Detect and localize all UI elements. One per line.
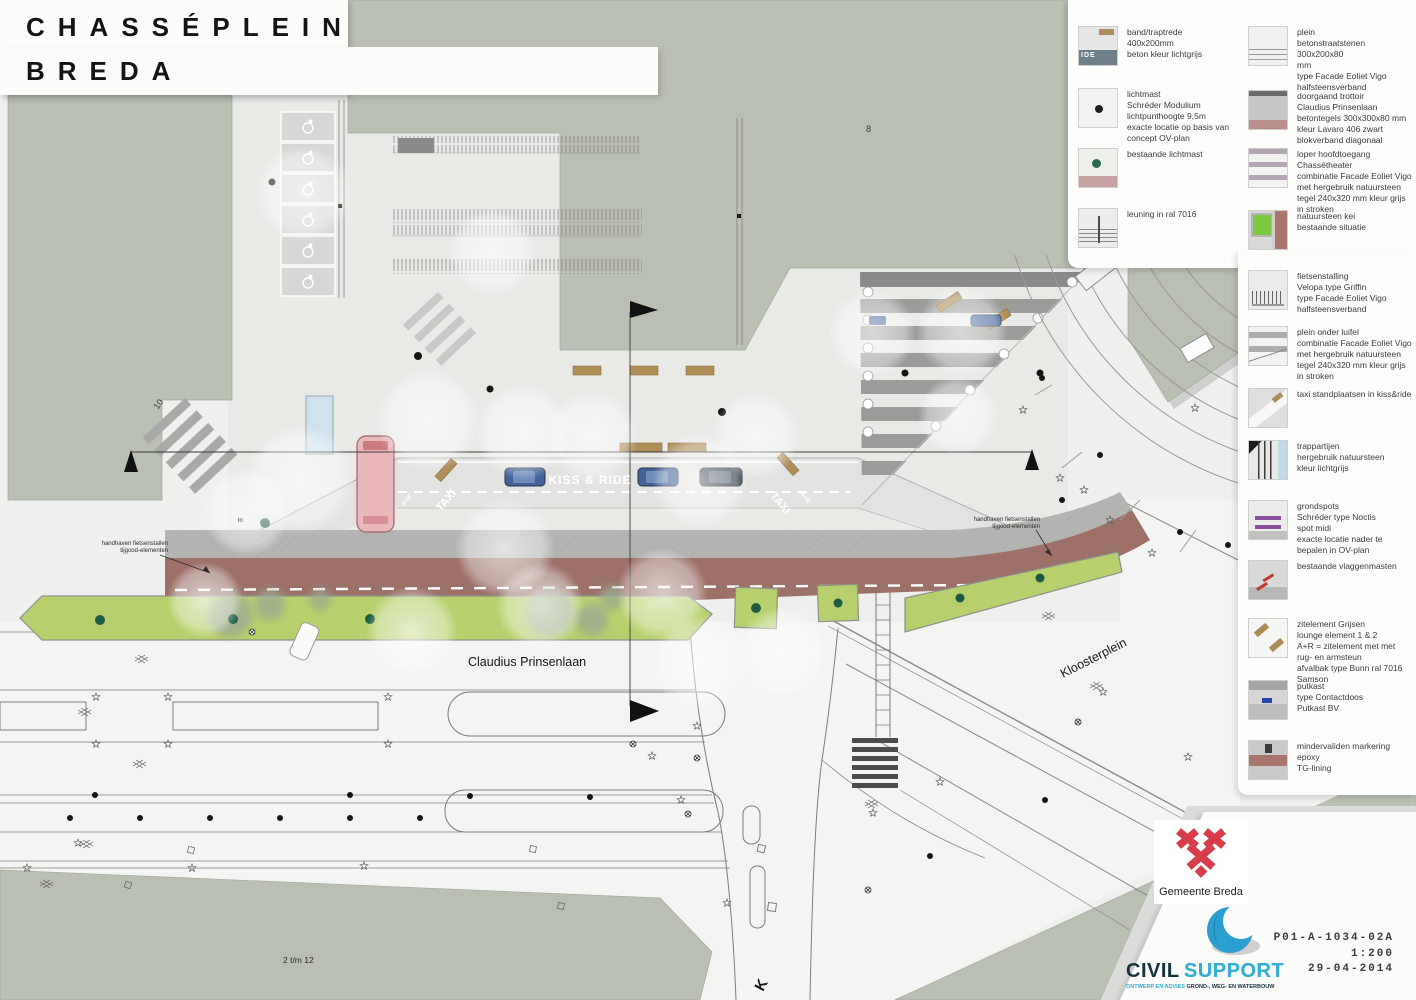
legend-thumb-bestaande-lichtmast-icon	[1078, 148, 1118, 188]
legend-item-label: fietsenstalling Velopa type Griffin type…	[1297, 270, 1413, 315]
legend-thumb-band-icon	[1078, 26, 1118, 66]
legend-item: loper hoofdtoegang Chassétheater combina…	[1248, 148, 1413, 215]
legend-item-label: loper hoofdtoegang Chassétheater combina…	[1297, 148, 1413, 215]
legend-item: taxi standplaatsen in kiss&ride	[1248, 388, 1413, 428]
legend-item: bestaande vlaggenmasten	[1248, 560, 1413, 600]
legend-thumb-loper-icon	[1248, 148, 1288, 188]
legend-thumb-leuning-icon	[1078, 208, 1118, 248]
legend-thumb-mindervaliden-icon	[1248, 740, 1288, 780]
building-range: 2 t/m 12	[283, 955, 314, 965]
legend-item-label: trappartijen hergebruik natuursteen kleu…	[1297, 440, 1413, 474]
legend-item-label: natuursteen kei bestaande situatie	[1297, 210, 1413, 233]
svg-text:tijgood-elementen: tijgood-elementen	[120, 548, 168, 554]
legend-item-label: mindervaliden markering epoxy TG-lining	[1297, 740, 1413, 774]
legend-thumb-trottoir-icon	[1248, 90, 1288, 130]
legend-item-label: grondspots Schréder type Noctis spot mid…	[1297, 500, 1413, 556]
legend-thumb-zitelement-icon	[1248, 618, 1288, 658]
legend-item-label: leuning in ral 7016	[1127, 208, 1243, 220]
building-no-8: 8	[866, 124, 871, 134]
legend-item: bestaande lichtmast	[1078, 148, 1243, 188]
legend-item-label: band/traptrede 400x200mm beton kleur lic…	[1127, 26, 1243, 60]
legend-thumb-kei-icon	[1248, 210, 1288, 250]
legend-item: band/traptrede 400x200mm beton kleur lic…	[1078, 26, 1243, 66]
legend-item-label: plein betonstraatstenen 300x200x80 mm ty…	[1297, 26, 1413, 93]
kiss-ride-label: KISS & RIDE	[548, 473, 631, 487]
legend-thumb-luifel-icon	[1248, 326, 1288, 366]
legend-item: fietsenstalling Velopa type Griffin type…	[1248, 270, 1413, 315]
legend-thumb-lichtmast-icon	[1078, 88, 1118, 128]
kiosk	[398, 138, 434, 153]
legend-item: plein betonstraatstenen 300x200x80 mm ty…	[1248, 26, 1413, 93]
legend-item: plein onder luifel combinatie Facade Eol…	[1248, 326, 1413, 382]
legend-item-label: lichtmast Schréder Modulium lichtpunthoo…	[1127, 88, 1243, 144]
legend-item-label: zitelement Grijsen lounge element 1 & 2 …	[1297, 618, 1413, 685]
legend-thumb-trappartijen-icon	[1248, 440, 1288, 480]
claudius-prinsenlaan-label: Claudius Prinsenlaan	[468, 655, 586, 669]
legend-item-label: plein onder luifel combinatie Facade Eol…	[1297, 326, 1413, 382]
legend-item: lichtmast Schréder Modulium lichtpunthoo…	[1078, 88, 1243, 144]
svg-text:handhaven fietsenstallen: handhaven fietsenstallen	[102, 541, 168, 547]
legend-item: mindervaliden markering epoxy TG-lining	[1248, 740, 1413, 780]
legend-thumb-grondspots-icon	[1248, 500, 1288, 540]
legend-thumb-vlaggenmast-icon	[1248, 560, 1288, 600]
legend-item-label: doorgaand trottoir Claudius Prinsenlaan …	[1297, 90, 1413, 146]
legend-item-label: bestaande lichtmast	[1127, 148, 1243, 160]
legend-item: trappartijen hergebruik natuursteen kleu…	[1248, 440, 1413, 480]
legend-thumb-putkast-icon	[1248, 680, 1288, 720]
legend-thumb-plein-icon	[1248, 26, 1288, 66]
legend-item: leuning in ral 7016	[1078, 208, 1243, 248]
legend-thumb-taxi-icon	[1248, 388, 1288, 428]
svg-text:tijgood-elementen: tijgood-elementen	[992, 524, 1040, 530]
leuning-mark: ln	[238, 518, 243, 524]
legend-item: doorgaand trottoir Claudius Prinsenlaan …	[1248, 90, 1413, 146]
legend-item-label: putkast type Contactdoos Putkast BV	[1297, 680, 1413, 714]
legend-thumb-fietsenstalling-icon	[1248, 270, 1288, 310]
legend-item: grondspots Schréder type Noctis spot mid…	[1248, 500, 1413, 556]
legend-item: natuursteen kei bestaande situatie	[1248, 210, 1413, 250]
legend-item-label: taxi standplaatsen in kiss&ride	[1297, 388, 1413, 400]
site-plan-sheet: KISS & RIDE TAXI TAXI A+R A+R Claudius P…	[0, 0, 1416, 1000]
svg-text:handhaven fietsenstallen: handhaven fietsenstallen	[974, 517, 1040, 523]
legend-item-label: bestaande vlaggenmasten	[1297, 560, 1413, 572]
legend-item: putkast type Contactdoos Putkast BV	[1248, 680, 1413, 720]
legend-item: zitelement Grijsen lounge element 1 & 2 …	[1248, 618, 1413, 685]
